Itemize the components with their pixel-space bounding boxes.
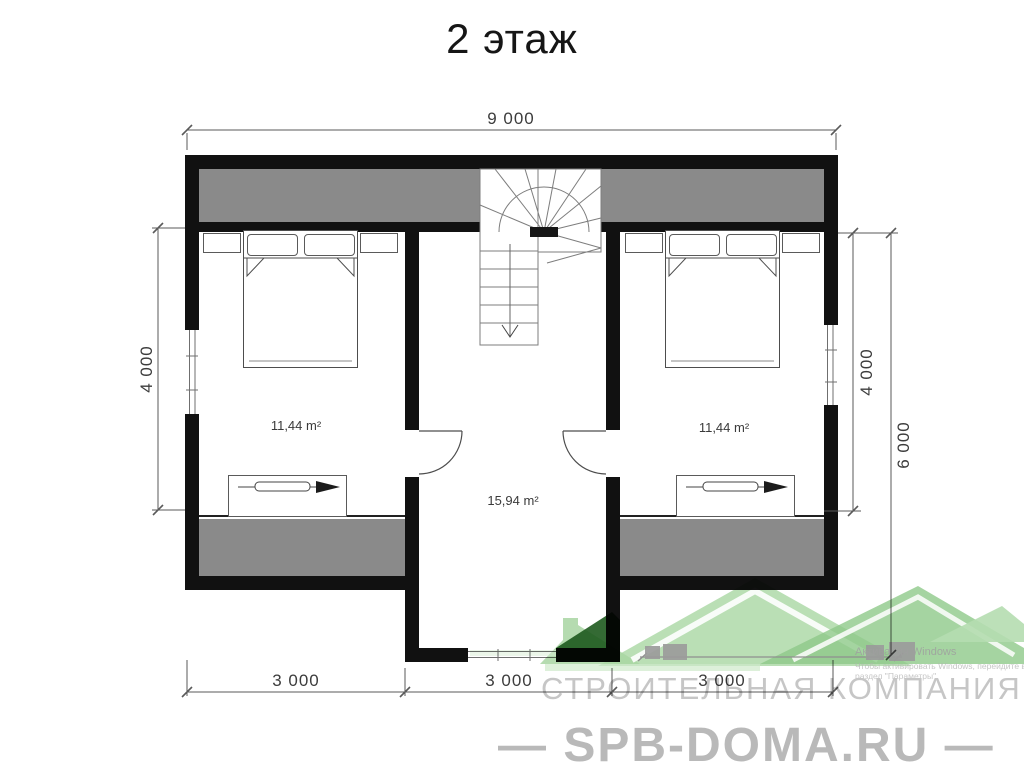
dim-right-inner: 4 000 [857, 341, 877, 403]
floor-plan-page: 2 этаж [0, 0, 1024, 768]
area-label-left-bedroom: 11,44 m² [246, 416, 346, 434]
dimension-lines [152, 125, 898, 697]
bed-fold-marks [243, 258, 780, 361]
dresser-symbol-left [238, 481, 340, 493]
dim-top: 9 000 [461, 108, 561, 130]
dresser-symbol-right [686, 481, 788, 493]
dim-right-outer: 6 000 [894, 414, 914, 476]
staircase [480, 169, 601, 345]
door-right-bedroom [563, 431, 606, 474]
dim-left: 4 000 [137, 338, 157, 400]
area-label-right-bedroom: 11,44 m² [674, 418, 774, 436]
dim-bottom-2: 3 000 [459, 671, 559, 691]
area-label-center-hall: 15,94 m² [463, 491, 563, 509]
dim-bottom-3: 3 000 [672, 671, 772, 691]
dim-bottom-1: 3 000 [246, 671, 346, 691]
door-left-bedroom [419, 431, 462, 474]
